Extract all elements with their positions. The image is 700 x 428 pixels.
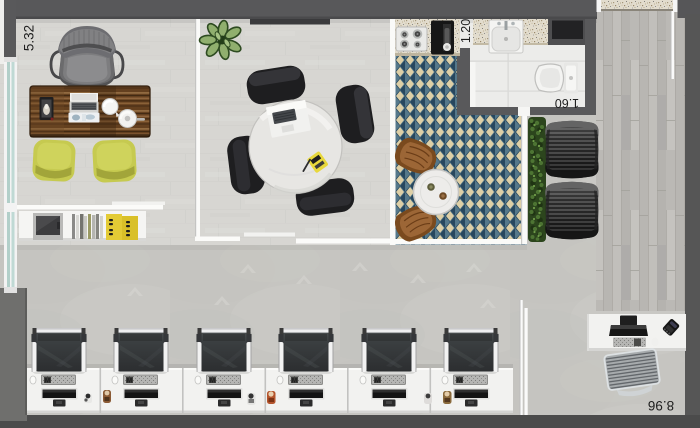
svg-text:1.20: 1.20	[459, 19, 473, 43]
svg-text:1.60: 1.60	[555, 96, 579, 110]
svg-text:5.32: 5.32	[22, 25, 37, 51]
svg-text:8.96: 8.96	[648, 398, 674, 413]
